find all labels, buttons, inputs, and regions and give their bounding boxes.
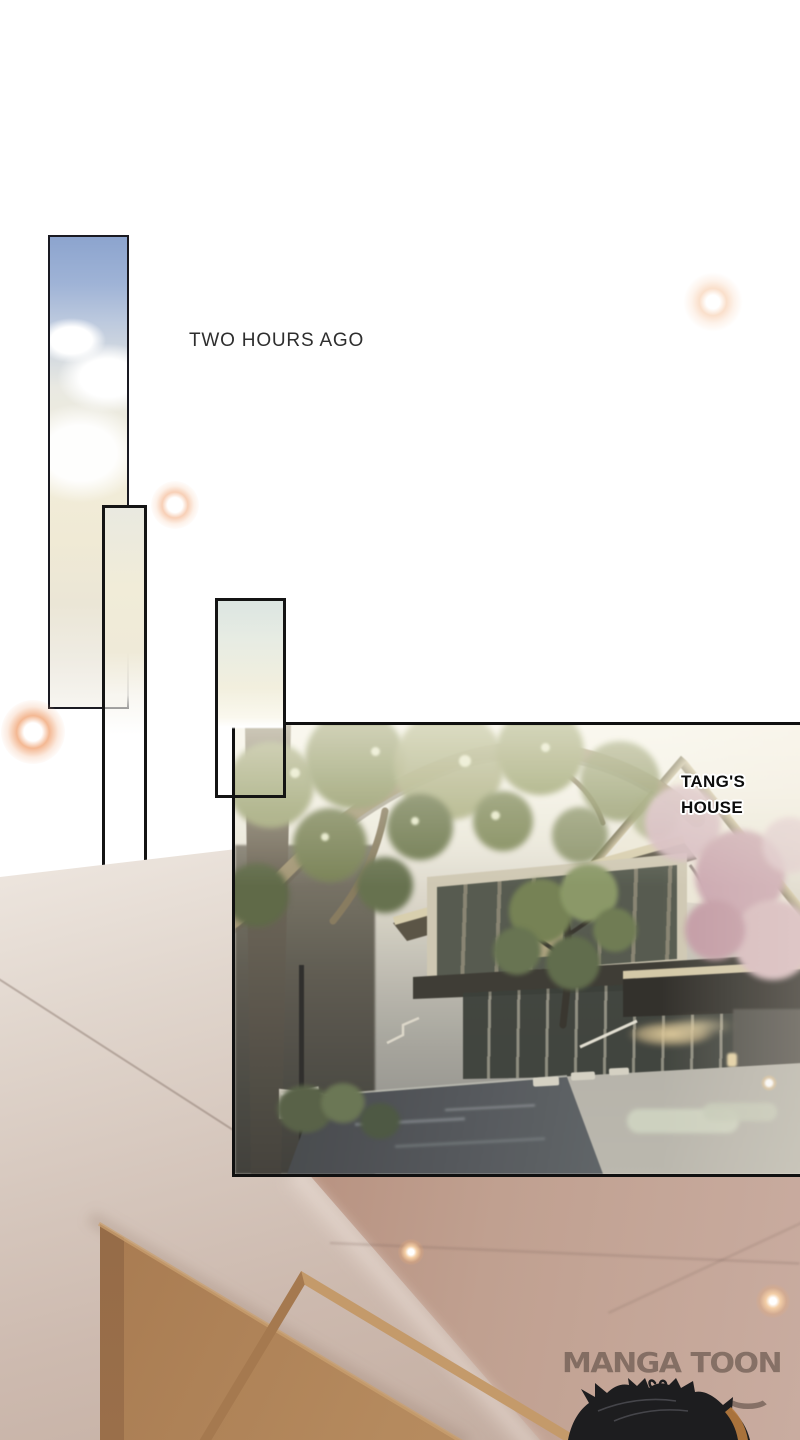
hair-silhouette [568,1378,750,1440]
bokeh-light [1,700,65,764]
ceiling-lamp [756,1284,790,1318]
watermark-text-toon: TOON [691,1347,782,1379]
character-head [556,1378,782,1440]
watermark-text-manga: MANGA [562,1347,681,1379]
photo-label-line1: TANG'S [681,769,745,795]
photo-label: TANG'S HOUSE [681,769,745,821]
scene-caption: TWO HOURS AGO [189,330,364,352]
manga-page: TWO HOURS AGO [0,0,800,1440]
ceiling-lamp [398,1239,424,1265]
bokeh-light [683,272,743,332]
mangatoon-watermark: MANGATOON [562,1347,781,1379]
photo-label-line2: HOUSE [681,795,745,821]
wall-seam-line [0,976,233,1130]
bokeh-light [151,481,199,529]
sky-panel-overlay [215,598,286,798]
house-photo-panel: TANG'S HOUSE [232,722,800,1177]
sky-panel-thin [102,505,147,871]
